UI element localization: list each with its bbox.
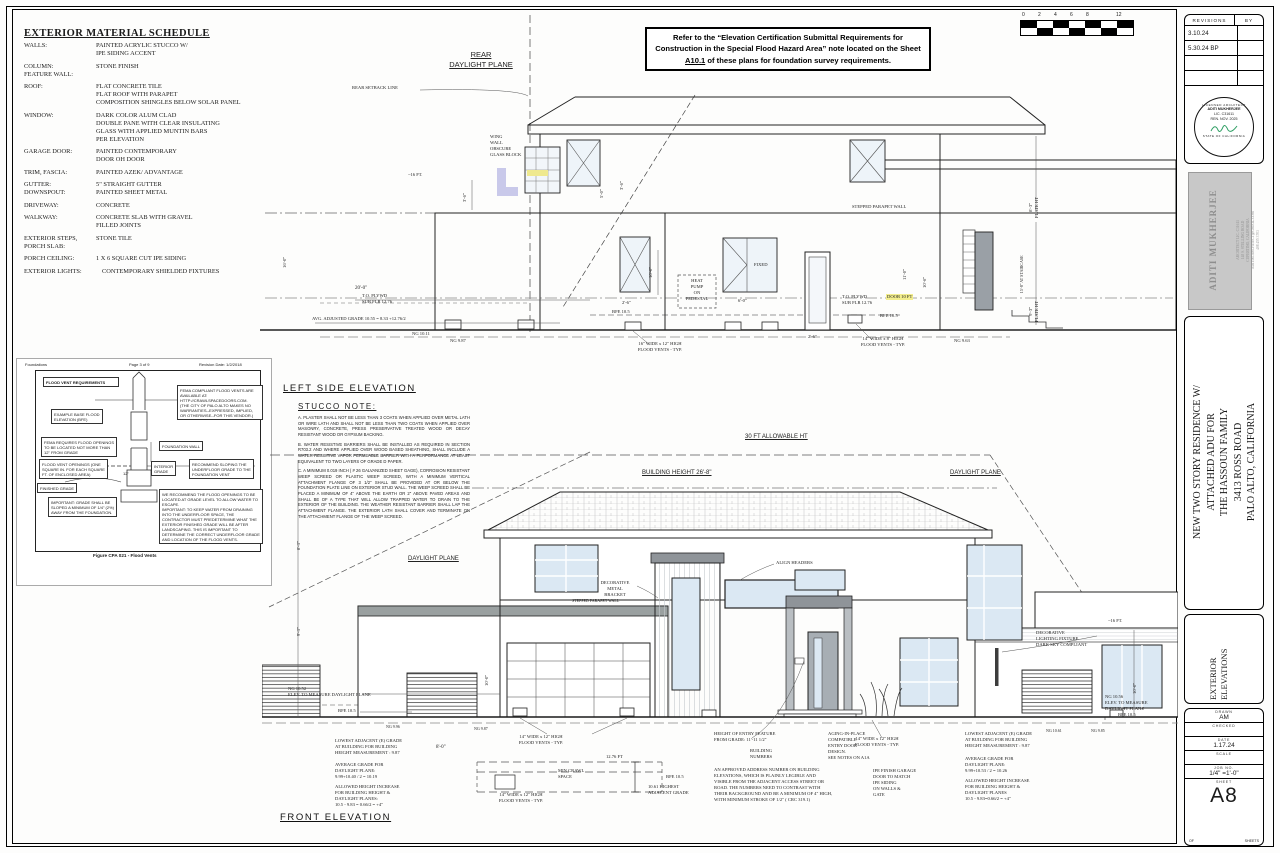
important-grade-callout: IMPORTANT: GRADE SHALL BE SLOPED A MINIM… xyxy=(48,497,117,517)
flood-vents-label: 14" WIDE x 12" HIGH FLOOD VENTS - TYP. xyxy=(848,736,906,748)
by-header: BY xyxy=(1235,15,1263,25)
front-elevation-title: FRONT ELEVATION xyxy=(280,812,391,823)
field-date: DATE1.17.24 xyxy=(1185,737,1263,751)
decorative-light-fixture xyxy=(995,648,999,686)
schedule-label: COLUMN: FEATURE WALL: xyxy=(24,63,96,79)
dim-label: 10'-0" xyxy=(484,675,490,686)
roof-fascia xyxy=(484,530,992,538)
dim-label: 9'-3" xyxy=(296,627,302,636)
flood-vents-label: 14" WIDE x 8" HIGH FLOOD VENTS - TYP. xyxy=(854,336,912,348)
dim-8-0-label: 8'-0" xyxy=(436,745,446,752)
heat-pump-label: HEAT PUMP ON PEDESTAL xyxy=(682,278,712,302)
allowed-increase-note: ALLOWED HEIGHT INCREASE FOR BUILDING HEI… xyxy=(335,784,399,808)
schedule-label: TRIM, FASCIA: xyxy=(24,169,96,177)
fixed-window xyxy=(723,238,777,292)
right-wing-roof-fascia xyxy=(878,160,1176,169)
flood-vent-figure: Foundations Page 3 of 9 Revision Date: 1… xyxy=(16,358,272,586)
tower-window xyxy=(672,578,700,690)
schedule-row: GUTTER: DOWNSPOUT:5" STRAIGHT GUTTER PAI… xyxy=(24,181,268,197)
figure-header-left: Foundations xyxy=(25,362,47,367)
flood-vents-label: 14" WIDE x 12" HIGH FLOOD VENTS - TYP. xyxy=(510,734,572,746)
ng-label: NG 9.87 xyxy=(450,338,466,344)
rear-setback-label: REAR SETBACK LINE xyxy=(352,85,398,91)
dim-label: 11'-0" xyxy=(902,269,908,280)
revision-row: 3.10.24 xyxy=(1185,26,1263,41)
architectural-sheet: { "material_schedule":{ "title":"EXTERIO… xyxy=(0,0,1280,853)
dim-12-label: 12" xyxy=(123,471,129,476)
bfe-label: BFE 10.5 xyxy=(666,774,684,780)
lowest-grade-note: LOWEST ADJACENT (E) GRADE AT BUILDING FO… xyxy=(335,738,402,756)
field-checked: CHECKED xyxy=(1185,723,1263,737)
average-grade-note: AVERAGE GRADE FOR DAYLIGHT PLANE: 9.99+1… xyxy=(965,756,1013,774)
entry-step xyxy=(778,710,862,714)
decorative-light-label: DECORATIVE LIGHTING FIXTURE DARK SKY COM… xyxy=(1036,630,1087,648)
field-scale: SCALE xyxy=(1185,751,1263,765)
wing-wall-label: WING WALL OBSCURE GLASS BLOCK xyxy=(490,134,521,158)
stamp-signature xyxy=(1209,122,1239,134)
architect-contact: ARCHITECT LIC. C31611 148 S. STELLING RO… xyxy=(1236,174,1261,306)
schedule-label: WINDOW: xyxy=(24,112,96,144)
dim-label: 10'-0" xyxy=(648,267,654,278)
schedule-label: EXTERIOR STEPS, PORCH SLAB: xyxy=(24,235,96,251)
bfe-label: BFE 10.5 xyxy=(1118,712,1136,718)
sheet-info-block: DRAWNAM CHECKED DATE1.17.24 SCALE JOB NO… xyxy=(1184,708,1264,846)
recommend-slope-callout: RECOMMEND SLOPING THE UNDERFLOOR GRADE T… xyxy=(189,459,254,479)
address-number-plate xyxy=(795,658,804,664)
bfe-label: BFE 10.5 xyxy=(880,313,898,319)
finished-grade-callout: FINISHED GRADE xyxy=(37,483,77,493)
figure-title: FLOOD VENT REQUIREMENTS xyxy=(43,377,119,387)
allowed-increase-note: ALLOWED HEIGHT INCREASE FOR BUILDING HEI… xyxy=(965,778,1029,802)
entry-height-note: HEIGHT OF ENTRY FEATURE FROM GRADE: 11'-… xyxy=(714,731,775,743)
stair-window-strip xyxy=(963,230,975,293)
schedule-value: PAINTED AZEK/ ADVANTAGE xyxy=(96,169,183,177)
lowest-grade-note: LOWEST ADJACENT (E) GRADE AT BUILDING FO… xyxy=(965,731,1032,749)
schedule-row: TRIM, FASCIA:PAINTED AZEK/ ADVANTAGE xyxy=(24,169,268,177)
entry-clerestory xyxy=(795,570,845,590)
schedule-label: GARAGE DOOR: xyxy=(24,148,96,164)
flood-vents xyxy=(445,315,862,330)
building-height-label: BUILDING HEIGHT 26'-8" xyxy=(642,470,712,478)
height-16ft-label: ~16 FT. xyxy=(1108,618,1122,624)
entry-column xyxy=(844,608,852,717)
front-elevation-drawing: 30 FT ALLOWABLE HT DAYLIGHT PLANE DAYLIG… xyxy=(262,420,1178,820)
daylight-plane-label: DAYLIGHT PLANE xyxy=(950,470,1001,478)
schedule-row: WALKWAY:CONCRETE SLAB WITH GRAVEL FILLED… xyxy=(24,214,268,230)
sheet-number: A8 xyxy=(1185,784,1263,808)
right-wing-parapet xyxy=(1035,592,1178,628)
ng-label: NG 9.87 xyxy=(474,726,488,731)
fema-requirement-callout: FEMA REQUIRES FLOOD OPENINGS TO BE LOCAT… xyxy=(41,437,117,457)
ng-label: NG 9.96 xyxy=(386,724,400,729)
schedule-label: PORCH CEILING: xyxy=(24,255,96,263)
schedule-value: PAINTED CONTEMPORARY DOOR OH DOOR xyxy=(96,148,177,164)
left-elevation-title: LEFT SIDE ELEVATION xyxy=(283,383,416,394)
ng-daylight-label: NG 10.52 ELEV. TO MEASURE DAYLIGHT PLANE xyxy=(288,686,371,698)
entry-portico-header xyxy=(786,596,852,608)
left-side-elevation-drawing: REAR DAYLIGHT PLANE REAR SETBACK LINE WI… xyxy=(260,10,1176,388)
avg-grade-label: AVG. ADJUSTED GRADE 10.55 = 8.33 +12.76/… xyxy=(312,316,406,322)
align-headers-label: ALIGN HEADERS xyxy=(776,560,813,566)
field-drawn: DRAWNAM xyxy=(1185,709,1263,723)
ng-label: NG 10.11 xyxy=(412,331,430,337)
stair-window xyxy=(967,545,1022,640)
of-sheets-row: OFSHEETS xyxy=(1189,839,1259,843)
schedule-value: PAINTED ACRYLIC STUCCO W/ IPE SIDING ACC… xyxy=(96,42,188,58)
revision-row xyxy=(1185,71,1263,86)
schedule-value: FLAT CONCRETE TILE FLAT ROOF WITH PARAPE… xyxy=(96,83,241,107)
of-label: OF xyxy=(1189,839,1194,843)
ng-label: NG 9.63 xyxy=(954,338,970,344)
bfe-label: BFE 10.5 xyxy=(612,309,630,315)
dim-label: 2'-6" xyxy=(808,334,817,340)
highlight-lavender xyxy=(497,168,518,196)
to-plywd-label: T.O. PLYWD SUB FLR 12.76 xyxy=(842,294,872,306)
plate-height-label: 9'-3" PLATE HT xyxy=(1028,301,1040,322)
dim-1276-label: 12.76 FT xyxy=(606,754,623,760)
schedule-value: CONCRETE SLAB WITH GRAVEL FILLED JOINTS xyxy=(96,214,193,230)
dim-label: 2'-6" xyxy=(622,300,631,306)
schedule-value: CONTEMPORARY SHIELDED FIXTURES xyxy=(102,268,219,276)
schedule-value: STONE TILE xyxy=(96,235,132,251)
main-roof xyxy=(488,492,988,530)
fema-vendor-callout: FEMA COMPLIANT FLOOD VENTS ARE AVAILABLE… xyxy=(177,385,263,420)
schedule-label: WALKWAY: xyxy=(24,214,96,230)
ipe-slat-gate xyxy=(407,673,477,717)
dim-label: 10'-6" xyxy=(922,277,928,288)
schedule-row: ROOF:FLAT CONCRETE TILE FLAT ROOF WITH P… xyxy=(24,83,268,107)
stepped-parapet-label: STEPPED PARAPET WALL xyxy=(572,598,619,603)
figure-caption: Figure CPA 021 - Flood Vents xyxy=(93,553,157,559)
dim-label: 5'-0" xyxy=(599,189,605,198)
min-crawl-label: MIN CRAWL SPACE xyxy=(558,768,584,780)
stepped-parapet-label: STEPPED PARAPET WALL xyxy=(852,204,906,210)
schedule-label: ROOF: xyxy=(24,83,96,107)
building-numbers-label: BUILDING NUMBERS xyxy=(742,748,780,760)
entry-column xyxy=(786,608,794,717)
ng-label: NG 10.61 xyxy=(1046,728,1062,733)
decorative-bracket-label: DECORATIVE METAL BRACKET xyxy=(598,580,632,598)
daylight-plane-label: DAYLIGHT PLANE xyxy=(408,556,459,564)
stamp-renewal: REN. NOV. 2025 xyxy=(1195,117,1253,122)
schedule-label: GUTTER: DOWNSPOUT: xyxy=(24,181,96,197)
upper-roof-top xyxy=(528,97,1045,125)
flood-vents-label: 16" WIDE x 12" HIGH FLOOD VENTS - TYP. xyxy=(630,341,690,353)
schedule-row: COLUMN: FEATURE WALL:STONE FINISH xyxy=(24,63,268,79)
stucco-note-title: STUCCO NOTE: xyxy=(298,402,470,411)
leader-lines xyxy=(315,90,1036,345)
entry-door-side xyxy=(975,232,993,310)
highest-grade-label: 10.61 HIGHEST ADJACENT GRADE xyxy=(648,784,689,796)
dim-label: 3'-6" xyxy=(619,181,625,190)
schedule-label: DRIVEWAY: xyxy=(24,202,96,210)
right-wing-wall xyxy=(940,169,1176,213)
schedule-row: WALLS:PAINTED ACRYLIC STUCCO W/ IPE SIDI… xyxy=(24,42,268,58)
bfe-example-callout: EXAMPLE BASE FLOOD ELEVATION (BFE) xyxy=(51,409,103,424)
field-job-no: JOB NO.1/4" =1'-0" xyxy=(1185,765,1263,779)
schedule-row: PORCH CEILING:1 X 6 SQUARE CUT IPE SIDIN… xyxy=(24,255,268,263)
revision-row: 5.30.24 BP xyxy=(1185,41,1263,56)
schedule-value: 5" STRAIGHT GUTTER PAINTED SHEET METAL xyxy=(96,181,167,197)
garage-cornice xyxy=(358,606,668,616)
schedule-row: GARAGE DOOR:PAINTED CONTEMPORARY DOOR OH… xyxy=(24,148,268,164)
schedule-label: WALLS: xyxy=(24,42,96,58)
architect-info-text: ADITI MUKHERJEE ARCHITECT LIC. C31611 14… xyxy=(1190,174,1246,306)
schedule-row: WINDOW:DARK COLOR ALUM CLAD DOUBLE PANE … xyxy=(24,112,268,144)
to-plywd-label: T.O. PLYWD SUB FLR 12.76 xyxy=(362,293,392,305)
dim-label: 8'-3" xyxy=(296,541,302,550)
rear-daylight-plane-label: REAR DAYLIGHT PLANE xyxy=(438,50,524,70)
dim-label: 10'-0" xyxy=(1132,683,1138,694)
height-16ft-label: ~16 FT. xyxy=(408,172,422,178)
recommend-openings-callout: WE RECOMMEND THE FLOOD OPENINGS TO BE LO… xyxy=(159,489,263,544)
highlight-yellow xyxy=(527,170,548,176)
architect-name: ADITI MUKHERJEE xyxy=(1208,174,1218,306)
ipe-garage-note: IPE FINISH GARAGE DOOR TO MATCH IPE SIDI… xyxy=(873,768,916,798)
stamp-arc-bottom: STATE OF CALIFORNIA xyxy=(1195,134,1253,138)
schedule-value: 1 X 6 SQUARE CUT IPE SIDING xyxy=(96,255,186,263)
entry-door xyxy=(808,632,838,715)
flood-vents-label: 14" WIDE x 12" HIGH FLOOD VENTS - TYP. xyxy=(490,792,552,804)
schedule-value: CONCRETE xyxy=(96,202,130,210)
average-grade-note: AVERAGE GRADE FOR DAYLIGHT PLANE: 9.99+1… xyxy=(335,762,383,780)
sheet-title-text: EXTERIOR ELEVATIONS xyxy=(1208,616,1238,700)
plate-height-label: 8'-3" PLATE HT xyxy=(1028,197,1040,218)
front-elevation-linework xyxy=(262,420,1178,820)
material-schedule: EXTERIOR MATERIAL SCHEDULE WALLS:PAINTED… xyxy=(24,28,268,280)
schedule-label: EXTERIOR LIGHTS: xyxy=(24,268,102,276)
garage-door xyxy=(507,643,650,717)
vent-openings-callout: FLOOD VENT OPENINGS (ONE SQUARE IN. FOR … xyxy=(39,459,108,479)
door-highlight-label: DOOR 10 FT xyxy=(886,294,913,300)
schedule-row: EXTERIOR LIGHTS:CONTEMPORARY SHIELDED FI… xyxy=(24,268,268,276)
address-note: AN APPROVED ADDRESS NUMBER ON BUILDING E… xyxy=(714,767,832,803)
tower-cap xyxy=(651,553,724,563)
interior-grade-callout: INTERIOR GRADE xyxy=(151,461,176,476)
figure-header-right: Revision Date: 1/2/2018 xyxy=(199,362,242,367)
project-title-text: NEW TWO STORY RESIDENCE W/ ATTACHED ADU … xyxy=(1191,319,1255,605)
right-slat-gate xyxy=(1022,670,1092,713)
ng-label: NG 9.85 xyxy=(1091,728,1105,733)
entry-door-glass xyxy=(814,638,822,708)
schedule-row: DRIVEWAY:CONCRETE xyxy=(24,202,268,210)
dim-label: 3'-6" xyxy=(462,193,468,202)
revisions-table: REVISIONSBY 3.10.24 5.30.24 BP xyxy=(1185,15,1263,86)
schedule-row: EXTERIOR STEPS, PORCH SLAB:STONE TILE xyxy=(24,235,268,251)
bfe-label: BFE 10.5 xyxy=(338,708,356,714)
allowable-height-label: 30 FT ALLOWABLE HT xyxy=(745,434,808,442)
material-schedule-title: EXTERIOR MATERIAL SCHEDULE xyxy=(24,28,268,39)
architect-stamp: LICENSED ARCHITECT ADITI MUKHERJEE LIC. … xyxy=(1194,97,1254,157)
fixed-label: FIXED xyxy=(754,262,768,268)
revision-row xyxy=(1185,56,1263,71)
dim-20-0-label: 20'-0" xyxy=(355,286,367,293)
schedule-value: STONE FINISH xyxy=(96,63,139,79)
dim-label: 16'-0" xyxy=(282,257,288,268)
upper-roof-fascia xyxy=(528,125,1045,134)
ng-daylight-label: NG 10.56 ELEV. TO MEASURE DAYLIGHT PLANE xyxy=(1105,694,1148,712)
schedule-value: DARK COLOR ALUM CLAD DOUBLE PANE WITH CL… xyxy=(96,112,220,144)
landscape-grasses xyxy=(860,682,902,716)
foundation-wall-callout: FOUNDATION WALL xyxy=(159,441,203,451)
dim-label: 15'-8" AT STAIRCASE xyxy=(1019,255,1024,293)
figure-header-center: Page 3 of 9 xyxy=(129,362,149,367)
revisions-header: REVISIONS xyxy=(1185,15,1235,25)
field-sheet: SHEETA8 xyxy=(1185,779,1263,808)
sheets-label: SHEETS xyxy=(1245,839,1259,843)
dim-label: 6'-0" xyxy=(738,298,747,304)
revisions-and-stamp-block: REVISIONSBY 3.10.24 5.30.24 BP LICENSED … xyxy=(1184,14,1264,164)
